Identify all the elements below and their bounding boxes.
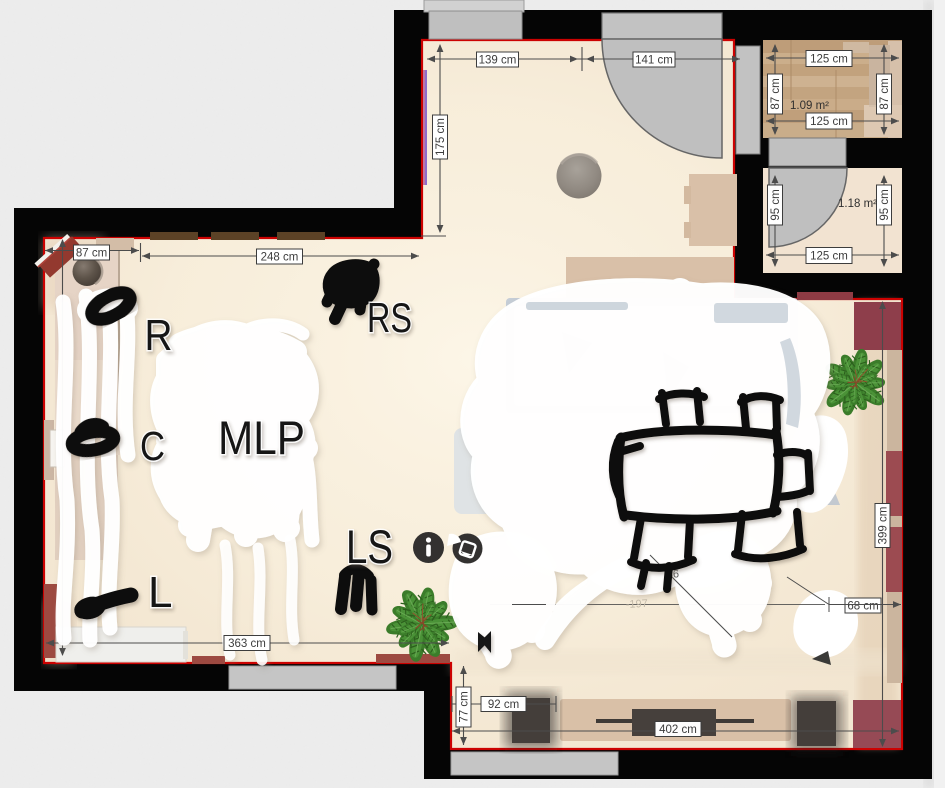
svg-text:95 cm: 95 cm <box>770 189 782 220</box>
svg-text:175 cm: 175 cm <box>435 118 447 156</box>
svg-text:125 cm: 125 cm <box>810 116 848 128</box>
svg-text:125 cm: 125 cm <box>810 251 848 263</box>
svg-text:87 cm: 87 cm <box>879 78 891 109</box>
svg-text:402 cm: 402 cm <box>659 724 697 736</box>
svg-text:1.18 m²: 1.18 m² <box>838 198 877 210</box>
svg-text:139 cm: 139 cm <box>479 55 517 67</box>
svg-text:248 cm: 248 cm <box>261 252 299 264</box>
svg-text:L: L <box>148 568 172 617</box>
svg-text:363 cm: 363 cm <box>228 638 266 650</box>
svg-text:77 cm: 77 cm <box>459 691 471 722</box>
svg-text:399 cm: 399 cm <box>878 507 890 545</box>
svg-text:92 cm: 92 cm <box>488 699 519 711</box>
svg-text:125 cm: 125 cm <box>810 54 848 66</box>
svg-text:-197: -197 <box>626 598 649 611</box>
svg-text:87 cm: 87 cm <box>76 248 107 260</box>
svg-text:1.09 m²: 1.09 m² <box>790 100 829 112</box>
svg-text:MLP: MLP <box>218 411 305 464</box>
svg-text:C: C <box>140 423 165 469</box>
svg-text:95 cm: 95 cm <box>879 189 891 220</box>
svg-text:68 cm: 68 cm <box>847 601 878 613</box>
svg-text:R: R <box>145 311 173 360</box>
svg-text:RS: RS <box>367 294 412 341</box>
svg-text:LS: LS <box>346 520 393 573</box>
svg-text:87 cm: 87 cm <box>770 78 782 109</box>
svg-text:141 cm: 141 cm <box>635 55 673 67</box>
